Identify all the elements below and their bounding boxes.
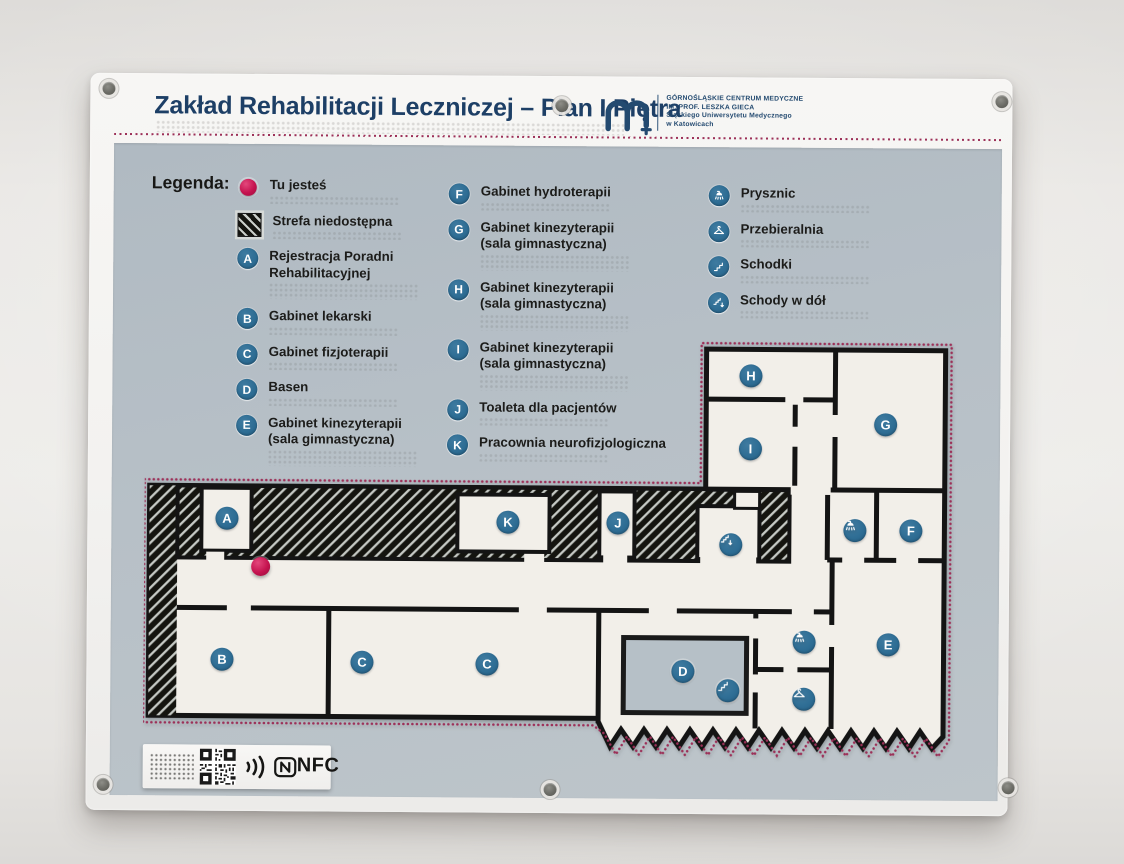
screw-top-right: [995, 95, 1008, 108]
tactile-sign-board: Zakład Rehabilitacji Leczniczej – Plan I…: [85, 73, 1012, 816]
stairwell-alcove-notch: [735, 491, 760, 508]
legend-letter-F: F: [449, 183, 470, 204]
legend-hanger-symbol: [708, 221, 729, 242]
legend-braille-dots: [272, 231, 402, 240]
legend-braille-dots: [741, 204, 871, 213]
floorplan-svg: [143, 332, 961, 763]
map-room-letter-B: B: [210, 648, 233, 671]
screw-bottom-middle: [544, 783, 557, 796]
legend-label: Strefa niedostępna: [272, 213, 402, 230]
hatch-left-strip: [148, 485, 178, 715]
legend-braille-dots: [270, 196, 400, 205]
logo-line-4: w Katowicach: [666, 121, 803, 131]
legend-item-schodki: Schodki: [708, 256, 933, 284]
legend-braille-dots: [740, 310, 870, 319]
legend-item-gabinet-kinezyterapii-sala-gimnastyczna: GGabinet kinezyterapii (sala gimnastyczn…: [448, 219, 673, 272]
legend-braille-dots: [269, 283, 419, 300]
legend-label: Schody w dół: [740, 292, 870, 309]
legend-label: Prysznic: [741, 185, 871, 202]
map-room-letter-C: C: [475, 652, 498, 675]
nfc-info-label: NFC: [143, 744, 331, 789]
logo-org-text: GÓRNOŚLĄSKIE CENTRUM MEDYCZNE IM. PROF. …: [666, 95, 803, 130]
legend-item-tu-jestes: Tu jesteś: [238, 177, 463, 205]
nfc-waves-icon: [243, 754, 271, 780]
screw-bottom-left: [97, 778, 110, 791]
stairs-down-icon: [712, 296, 725, 309]
map-room-letter-C: C: [350, 651, 373, 674]
map-room-letter-H: H: [739, 364, 762, 387]
legend-heading: Legenda:: [152, 172, 230, 194]
map-room-letter-E: E: [877, 633, 900, 656]
map-room-letter-A: A: [215, 507, 238, 530]
inaccessible-area-symbol: [237, 212, 261, 236]
legend-braille-dots: [480, 254, 630, 271]
legend-letter-G: G: [448, 219, 469, 240]
nfc-logo-icon: [274, 756, 297, 778]
map-stairs-down-marker: [719, 533, 742, 556]
shower-icon: [793, 631, 807, 645]
legend-column-3: PrysznicPrzebieralniaSchodkiSchody w dół: [708, 185, 934, 329]
room-H-bottom-wall: [706, 399, 835, 400]
legend-item-rejestracja-poradni-rehabilitacyjnej: ARejestracja Poradni Rehabilitacyjnej: [237, 248, 462, 301]
shower-icon: [843, 519, 857, 533]
legend-label: Rejestracja Poradni Rehabilitacyjnej: [269, 248, 419, 282]
map-hanger-marker: [792, 688, 815, 711]
legend-item-prysznic: Prysznic: [709, 185, 934, 213]
stairs-icon: [712, 260, 725, 273]
screw-bottom-right: [1002, 781, 1015, 794]
legend-label: Gabinet kinezyterapii (sala gimnastyczna…: [480, 279, 630, 313]
legend-item-gabinet-hydroterapii: FGabinet hydroterapii: [449, 183, 674, 211]
legend-stairs-down-symbol: [708, 292, 729, 313]
legend-item-strefa-niedostepna: Strefa niedostępna: [237, 212, 462, 240]
map-room-letter-D: D: [671, 660, 694, 683]
floor-plan: AKJHIGFBCCDE: [143, 332, 961, 763]
legend-label: Gabinet lekarski: [269, 308, 399, 325]
legend-item-przebieralnia: Przebieralnia: [708, 221, 933, 249]
legend-label: Tu jesteś: [270, 177, 400, 194]
hanger-icon: [792, 688, 806, 702]
map-room-letter-K: K: [496, 511, 519, 534]
stairs-icon: [716, 679, 730, 693]
legend-label: Gabinet kinezyterapii (sala gimnastyczna…: [480, 219, 630, 253]
hanger-icon: [712, 225, 725, 238]
legend-letter-H: H: [448, 279, 469, 300]
legend-braille-dots: [481, 202, 611, 211]
legend-shower-symbol: [709, 185, 730, 206]
logo-m-plus-icon: [602, 92, 654, 136]
logo-divider: [657, 95, 659, 131]
screw-top-left: [102, 82, 115, 95]
you-are-here-dot: [251, 557, 270, 576]
legend-label: Przebieralnia: [740, 221, 870, 238]
legend-label: Schodki: [740, 256, 870, 273]
hospital-logo: GÓRNOŚLĄSKIE CENTRUM MEDYCZNE IM. PROF. …: [600, 89, 930, 137]
map-shower-marker: [843, 519, 866, 542]
map-room-letter-I: I: [739, 437, 762, 460]
pool-room-left-wall: [598, 610, 599, 723]
screw-top-middle: [555, 99, 568, 112]
legend-braille-dots: [480, 314, 630, 331]
legend-braille-dots: [740, 275, 870, 284]
map-stairs-marker: [716, 679, 739, 702]
logo-line-1: GÓRNOŚLĄSKIE CENTRUM MEDYCZNE: [666, 95, 803, 105]
legend-letter-B: B: [237, 308, 258, 329]
legend-item-gabinet-lekarski: BGabinet lekarski: [237, 308, 462, 336]
shower-icon: [713, 189, 726, 202]
qr-code: [200, 749, 236, 785]
map-shower-marker: [793, 631, 816, 654]
legend-braille-dots: [740, 239, 870, 248]
room-B-right-wall: [328, 608, 329, 716]
stairs-down-icon: [719, 533, 733, 547]
label-braille-dots: [150, 753, 194, 779]
map-room-letter-G: G: [874, 413, 897, 436]
legend-stairs-symbol: [708, 256, 729, 277]
you-are-here-dot-symbol: [240, 179, 257, 196]
legend-letter-A: A: [237, 248, 258, 269]
map-room-letter-J: J: [606, 511, 629, 534]
map-room-letter-F: F: [899, 519, 922, 542]
legend-item-gabinet-kinezyterapii-sala-gimnastyczna: HGabinet kinezyterapii (sala gimnastyczn…: [448, 279, 673, 332]
legend-item-schody-w-dol: Schody w dół: [708, 292, 933, 320]
nfc-label-text: NFC: [297, 754, 340, 777]
legend-label: Gabinet hydroterapii: [481, 184, 611, 201]
